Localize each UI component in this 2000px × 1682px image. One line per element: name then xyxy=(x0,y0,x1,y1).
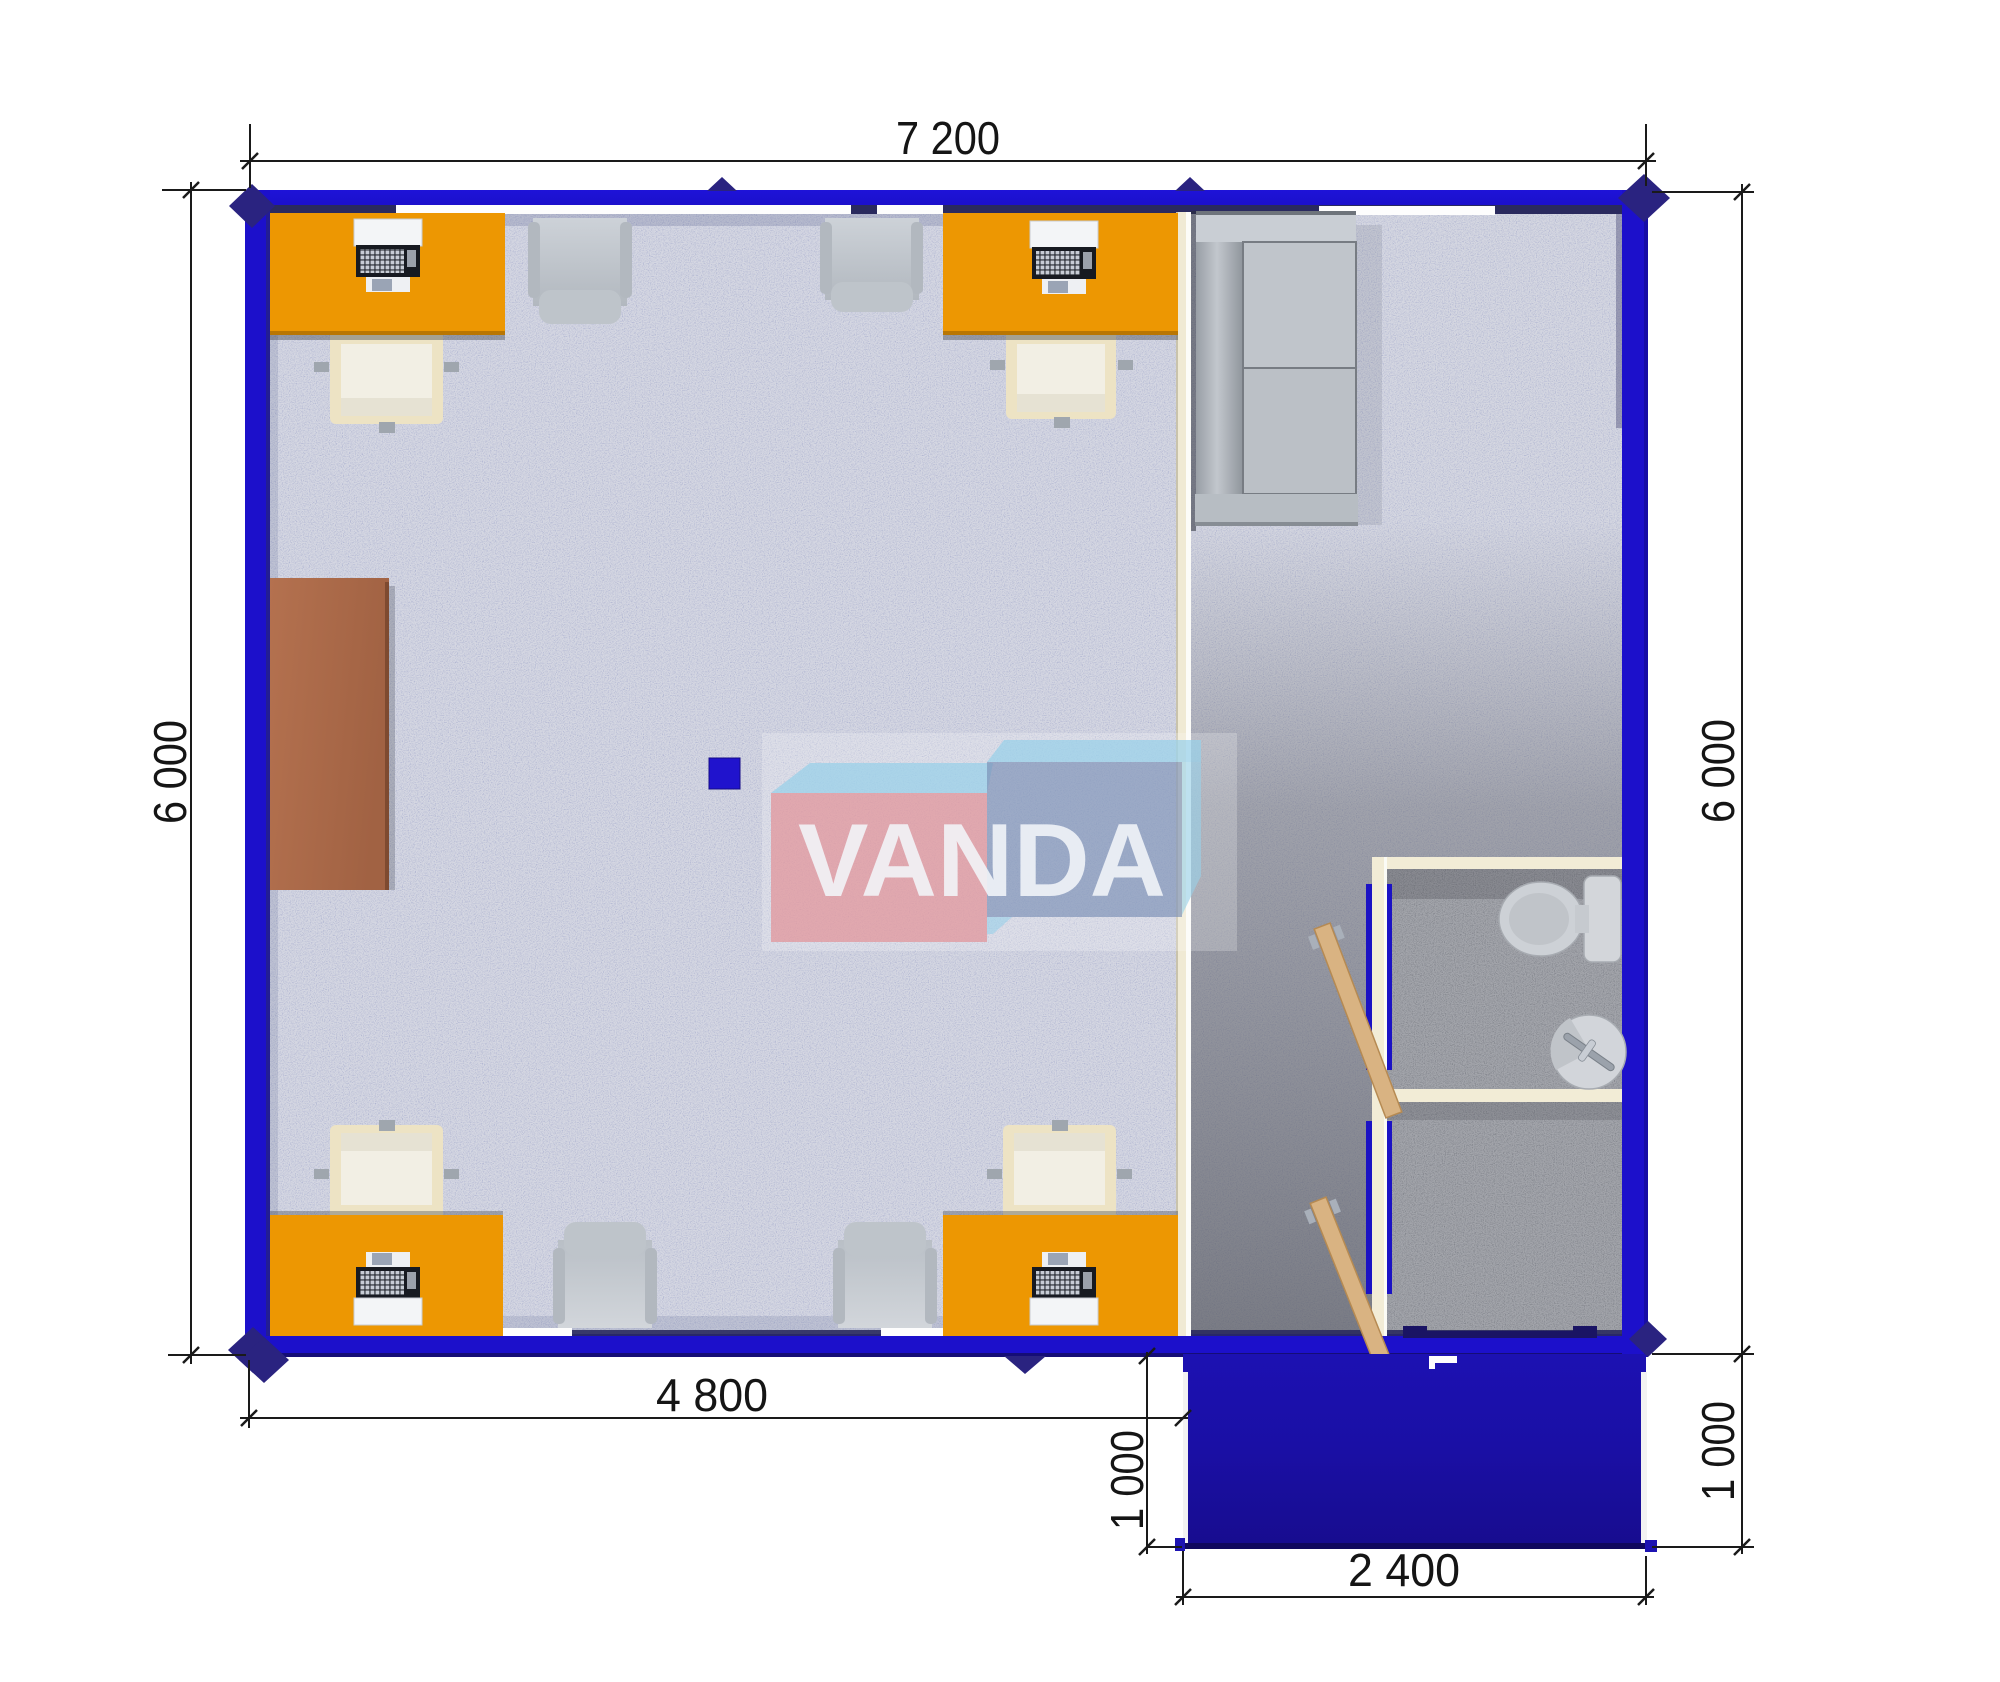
svg-text:1 000: 1 000 xyxy=(1101,1430,1153,1530)
svg-text:1 000: 1 000 xyxy=(1692,1401,1744,1501)
svg-text:VANDA: VANDA xyxy=(798,803,1166,919)
svg-text:7 200: 7 200 xyxy=(896,112,1000,164)
svg-text:6 000: 6 000 xyxy=(1692,719,1744,823)
svg-text:4 800: 4 800 xyxy=(656,1369,768,1421)
svg-text:2 400: 2 400 xyxy=(1348,1544,1460,1596)
svg-text:6 000: 6 000 xyxy=(144,720,196,824)
